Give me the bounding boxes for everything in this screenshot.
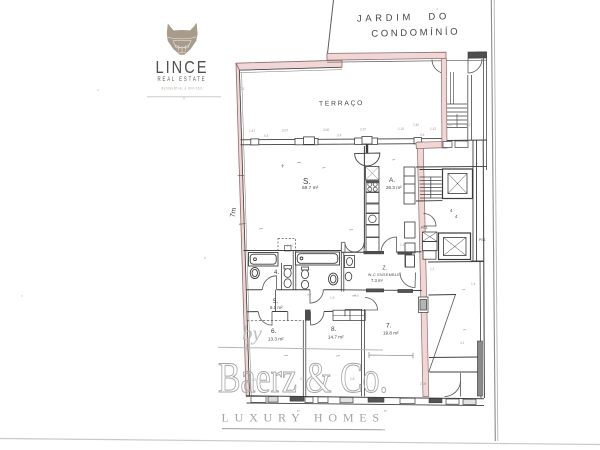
svg-text:5.1 m²: 5.1 m² xyxy=(270,305,283,310)
svg-text:1.12: 1.12 xyxy=(430,127,436,131)
svg-text:”: ” xyxy=(384,409,387,418)
svg-text:1.47: 1.47 xyxy=(400,243,406,247)
svg-text:1.4: 1.4 xyxy=(471,282,476,286)
svg-text:14.7 m²: 14.7 m² xyxy=(328,335,344,340)
svg-text:S.: S. xyxy=(303,177,311,186)
svg-text:by: by xyxy=(242,321,263,345)
svg-text:W.C ENSEMBLE: W.C ENSEMBLE xyxy=(368,273,400,277)
svg-text:1.40: 1.40 xyxy=(446,123,452,127)
svg-text:8.: 8. xyxy=(331,326,337,333)
svg-text:1.10: 1.10 xyxy=(398,127,404,131)
svg-text:7.3 m²: 7.3 m² xyxy=(371,278,383,283)
svg-text:0.4: 0.4 xyxy=(420,133,425,137)
svg-text:2.08: 2.08 xyxy=(420,382,426,386)
svg-text:1.40: 1.40 xyxy=(413,123,419,127)
svg-text:3.07: 3.07 xyxy=(282,129,288,133)
svg-text:TERRAÇO: TERRAÇO xyxy=(319,100,364,108)
svg-text:”: ” xyxy=(297,409,300,418)
svg-text:1.47: 1.47 xyxy=(249,129,255,133)
svg-text:26.3 m²: 26.3 m² xyxy=(386,185,402,190)
svg-text:Z.: Z. xyxy=(383,266,387,272)
svg-text:1.9: 1.9 xyxy=(330,296,335,300)
svg-text:0.4: 0.4 xyxy=(337,133,342,137)
svg-text:4.1: 4.1 xyxy=(460,341,465,345)
svg-text:PG1: PG1 xyxy=(479,238,486,242)
svg-text:1.2: 1.2 xyxy=(466,123,471,127)
svg-text:6.: 6. xyxy=(271,328,277,335)
svg-text:REAL ESTATE: REAL ESTATE xyxy=(158,76,207,83)
svg-text:0.4: 0.4 xyxy=(264,134,269,138)
svg-text:LINCE: LINCE xyxy=(156,57,209,77)
svg-text:3.00: 3.00 xyxy=(323,128,329,132)
svg-text:PG1: PG1 xyxy=(421,226,428,230)
svg-text:A.: A. xyxy=(389,177,395,184)
svg-text:1.1: 1.1 xyxy=(430,267,435,271)
svg-text:2.97: 2.97 xyxy=(360,128,366,132)
svg-text:0.3: 0.3 xyxy=(240,87,245,91)
svg-text:4.: 4. xyxy=(274,270,279,276)
svg-text:CONDOMÍNÍO: CONDOMÍNÍO xyxy=(371,26,460,39)
svg-text:2.07: 2.07 xyxy=(287,244,293,248)
svg-text:19.8 m²: 19.8 m² xyxy=(383,331,399,336)
svg-text:0.9: 0.9 xyxy=(354,294,359,298)
svg-text:Baerz & Co.: Baerz & Co. xyxy=(218,354,388,402)
svg-text:7.: 7. xyxy=(386,323,392,330)
svg-text:59.7 m²: 59.7 m² xyxy=(302,185,319,191)
svg-text:13.3 m²: 13.3 m² xyxy=(268,337,284,342)
svg-text:RESIDENTIAL & OFFICES: RESIDENTIAL & OFFICES xyxy=(162,87,203,91)
svg-text:LUXURY HOMES: LUXURY HOMES xyxy=(222,411,385,425)
